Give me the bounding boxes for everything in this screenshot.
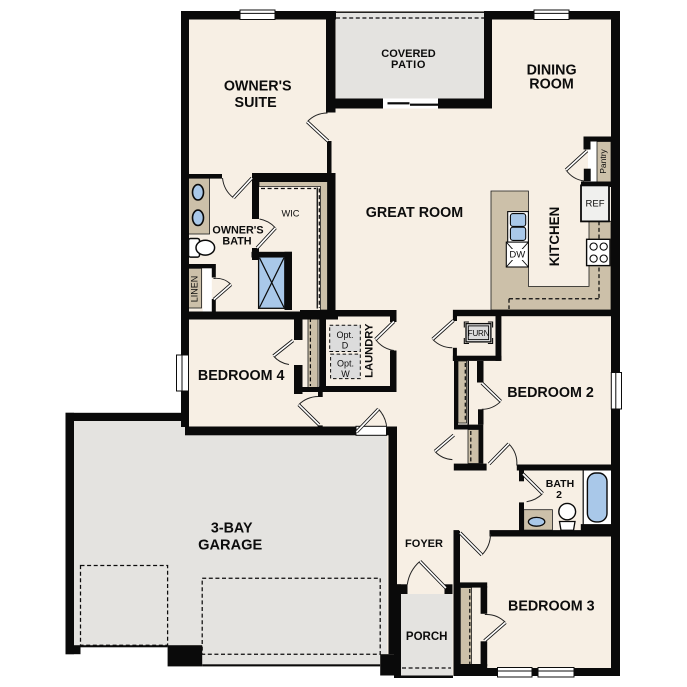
svg-text:FOYER: FOYER (405, 538, 443, 550)
svg-text:2: 2 (556, 489, 562, 501)
svg-text:ROOM: ROOM (529, 77, 573, 93)
svg-text:KITCHEN: KITCHEN (547, 207, 562, 267)
svg-text:BATH: BATH (222, 235, 251, 247)
svg-text:SUITE: SUITE (235, 95, 277, 111)
svg-text:GARAGE: GARAGE (198, 538, 262, 554)
svg-text:REF: REF (586, 199, 605, 210)
svg-text:BEDROOM 4: BEDROOM 4 (198, 368, 285, 384)
svg-text:FURN: FURN (468, 329, 490, 338)
svg-text:PORCH: PORCH (406, 631, 448, 643)
svg-text:GREAT ROOM: GREAT ROOM (366, 205, 463, 221)
svg-text:PATIO: PATIO (391, 59, 426, 71)
svg-text:WIC: WIC (281, 209, 299, 219)
svg-text:LINEN: LINEN (190, 276, 200, 303)
svg-text:Opt.: Opt. (336, 330, 353, 340)
svg-text:D: D (342, 341, 349, 351)
svg-text:Opt.: Opt. (337, 359, 354, 369)
svg-text:OWNER'S: OWNER'S (224, 78, 292, 94)
svg-text:Pantry: Pantry (598, 148, 608, 173)
svg-text:BEDROOM 2: BEDROOM 2 (507, 385, 594, 401)
svg-text:DW: DW (509, 250, 525, 261)
svg-text:BEDROOM 3: BEDROOM 3 (508, 599, 595, 615)
svg-text:W: W (341, 369, 350, 379)
svg-text:LAUNDRY: LAUNDRY (364, 323, 376, 378)
svg-text:3-BAY: 3-BAY (211, 520, 253, 536)
